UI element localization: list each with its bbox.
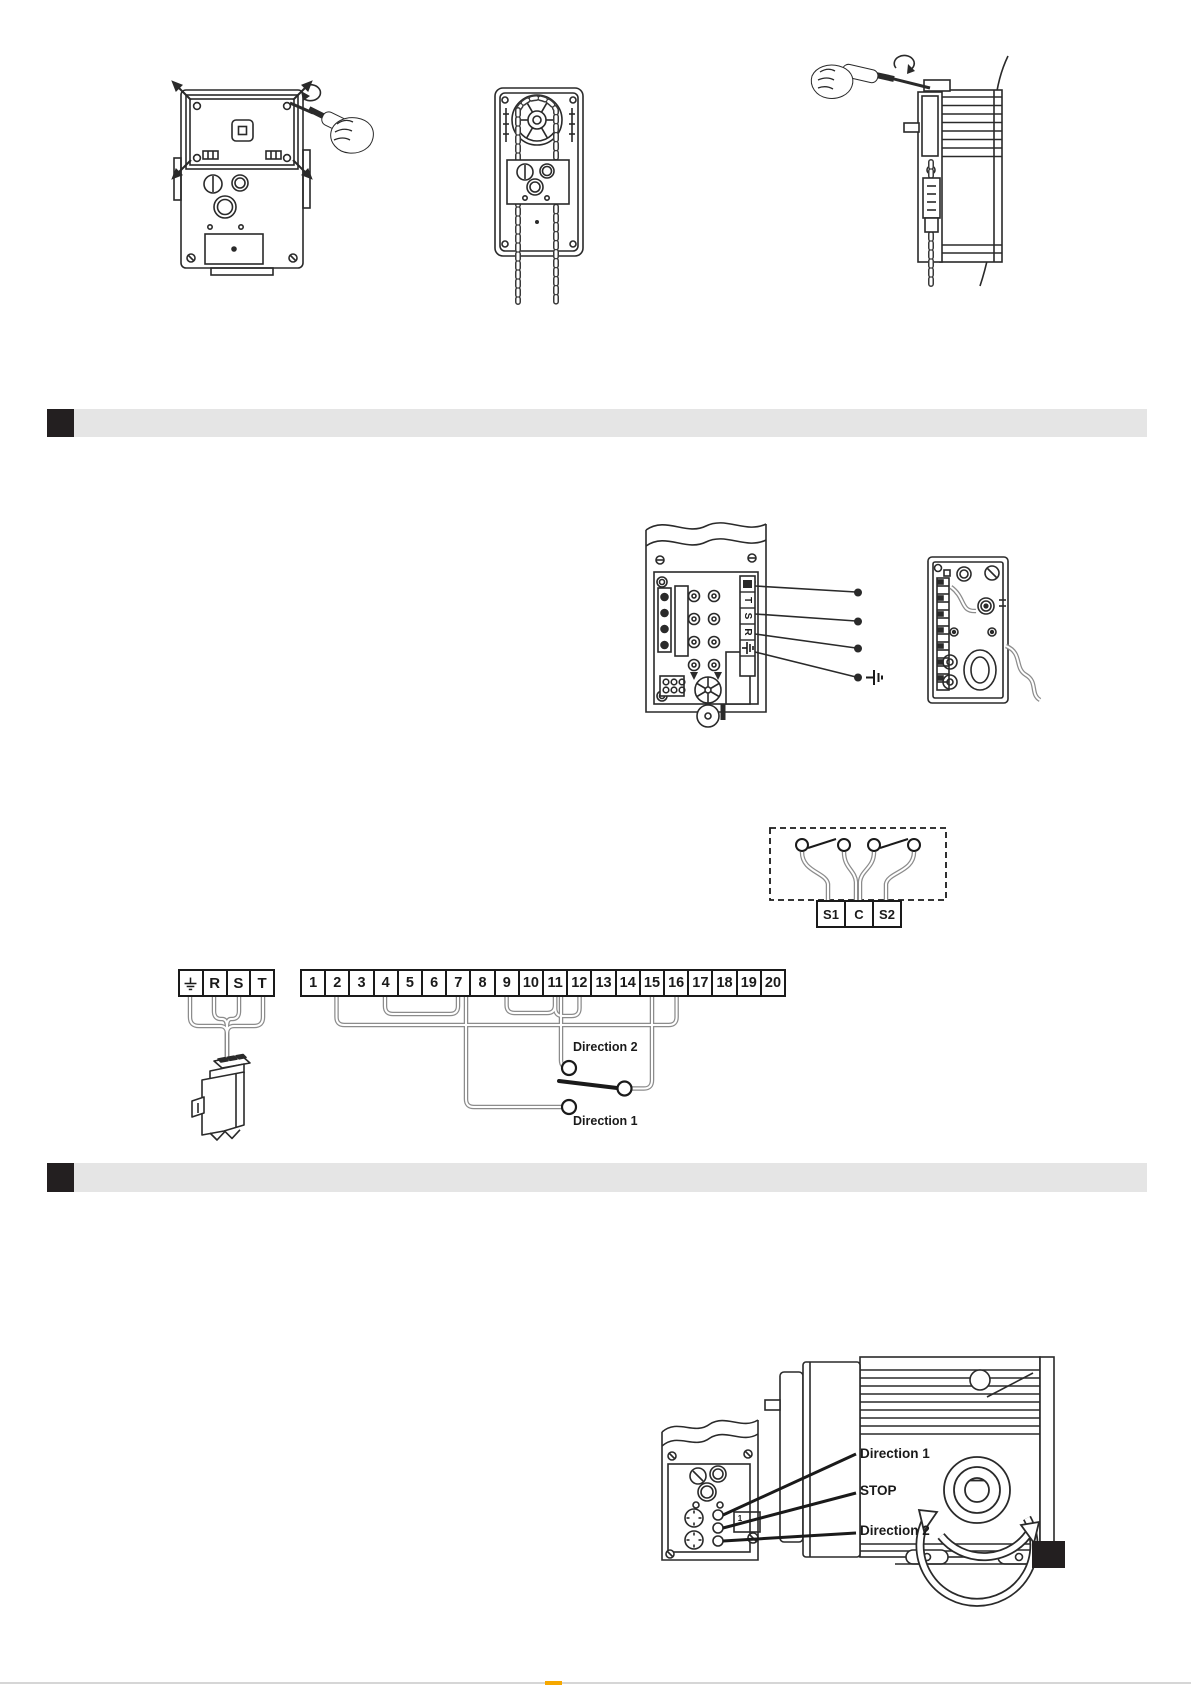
direction2-label: Direction 2 bbox=[573, 1040, 638, 1054]
illustration-unscrew-cover-front bbox=[153, 58, 378, 293]
diagram-back-panel bbox=[928, 557, 1008, 703]
manual-page: T S R bbox=[0, 0, 1191, 1685]
direction1-button bbox=[713, 1510, 723, 1520]
terminal-cell-s2: S2 bbox=[872, 902, 900, 926]
chain-guide-block bbox=[507, 160, 569, 204]
direction2-button bbox=[713, 1536, 723, 1546]
terminal-letter-t: T bbox=[742, 597, 753, 603]
limit-switch-contacts bbox=[796, 839, 920, 851]
motor-direction1-label: Direction 1 bbox=[860, 1446, 930, 1461]
direction1-contact bbox=[562, 1100, 576, 1114]
limit-switch-wires bbox=[802, 852, 914, 900]
section-number-chip bbox=[47, 409, 74, 437]
stop-button bbox=[713, 1523, 723, 1533]
terminal-letter-s: S bbox=[742, 613, 753, 620]
footer-rule bbox=[0, 1682, 1191, 1684]
illustration-unscrew-side bbox=[772, 50, 1012, 290]
motor-direction2-label: Direction 2 bbox=[860, 1523, 930, 1538]
hand-with-screwdriver-icon bbox=[811, 55, 930, 98]
circuit-breaker bbox=[192, 1055, 250, 1141]
page-number-block bbox=[1032, 1541, 1065, 1568]
diagram-control-box-connections: T S R bbox=[628, 500, 1058, 722]
limit-switch-terminal-block: S1 C S2 bbox=[816, 900, 902, 928]
section-header-bar bbox=[47, 1163, 1147, 1192]
terminal-cell-s1: S1 bbox=[818, 902, 844, 926]
terminal-cell-c: C bbox=[844, 902, 872, 926]
terminal-letter-r: R bbox=[742, 628, 753, 636]
motor-shaft-boss bbox=[944, 1457, 1010, 1523]
section-header-bar bbox=[47, 409, 1147, 437]
direction2-contact bbox=[562, 1061, 576, 1075]
footer-accent-mark bbox=[545, 1681, 562, 1685]
power-terminal-strip: T S R bbox=[740, 576, 755, 676]
section-number-chip bbox=[47, 1163, 74, 1192]
switch-pivot-contact bbox=[618, 1082, 632, 1096]
diagram-motor-direction: 1 bbox=[610, 1272, 1070, 1570]
wiring-callout-lines bbox=[755, 586, 861, 681]
motor-stop-label: STOP bbox=[860, 1483, 897, 1498]
direction1-label: Direction 1 bbox=[573, 1114, 638, 1128]
earth-ground-icon bbox=[866, 670, 882, 685]
direction-selector-switch bbox=[559, 1061, 632, 1114]
illustration-hoist-front-chains bbox=[477, 80, 599, 308]
